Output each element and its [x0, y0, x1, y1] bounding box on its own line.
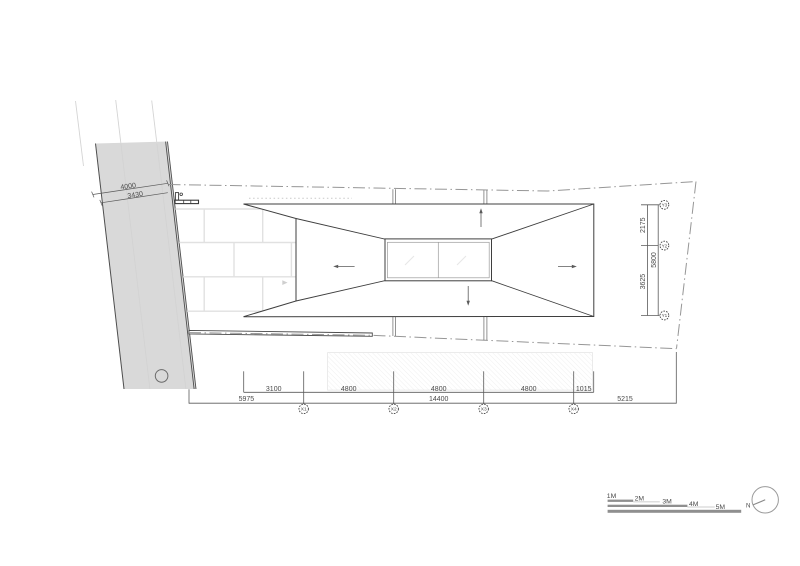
svg-text:4800: 4800: [341, 386, 357, 393]
svg-text:4800: 4800: [431, 386, 447, 393]
svg-text:3100: 3100: [266, 386, 282, 393]
svg-text:4M: 4M: [689, 501, 699, 508]
svg-text:X2: X2: [391, 407, 397, 413]
svg-text:5800: 5800: [651, 252, 658, 268]
svg-text:1015: 1015: [576, 386, 592, 393]
svg-text:4800: 4800: [521, 386, 537, 393]
svg-text:X3: X3: [481, 407, 487, 413]
svg-text:2175: 2175: [640, 217, 647, 233]
svg-text:3M: 3M: [662, 498, 672, 505]
svg-text:5M: 5M: [716, 504, 726, 511]
svg-text:2M: 2M: [635, 496, 645, 503]
svg-text:1M: 1M: [607, 493, 617, 500]
svg-text:N: N: [746, 503, 750, 510]
svg-text:14400: 14400: [429, 396, 449, 403]
svg-text:5975: 5975: [239, 396, 255, 403]
svg-text:3625: 3625: [640, 274, 647, 290]
svg-text:X4: X4: [571, 407, 577, 413]
svg-text:Y1: Y1: [662, 313, 668, 318]
svg-text:X1: X1: [301, 407, 307, 413]
svg-text:5215: 5215: [617, 396, 633, 403]
svg-text:Y3: Y3: [662, 203, 668, 208]
svg-text:Y2: Y2: [662, 243, 668, 248]
